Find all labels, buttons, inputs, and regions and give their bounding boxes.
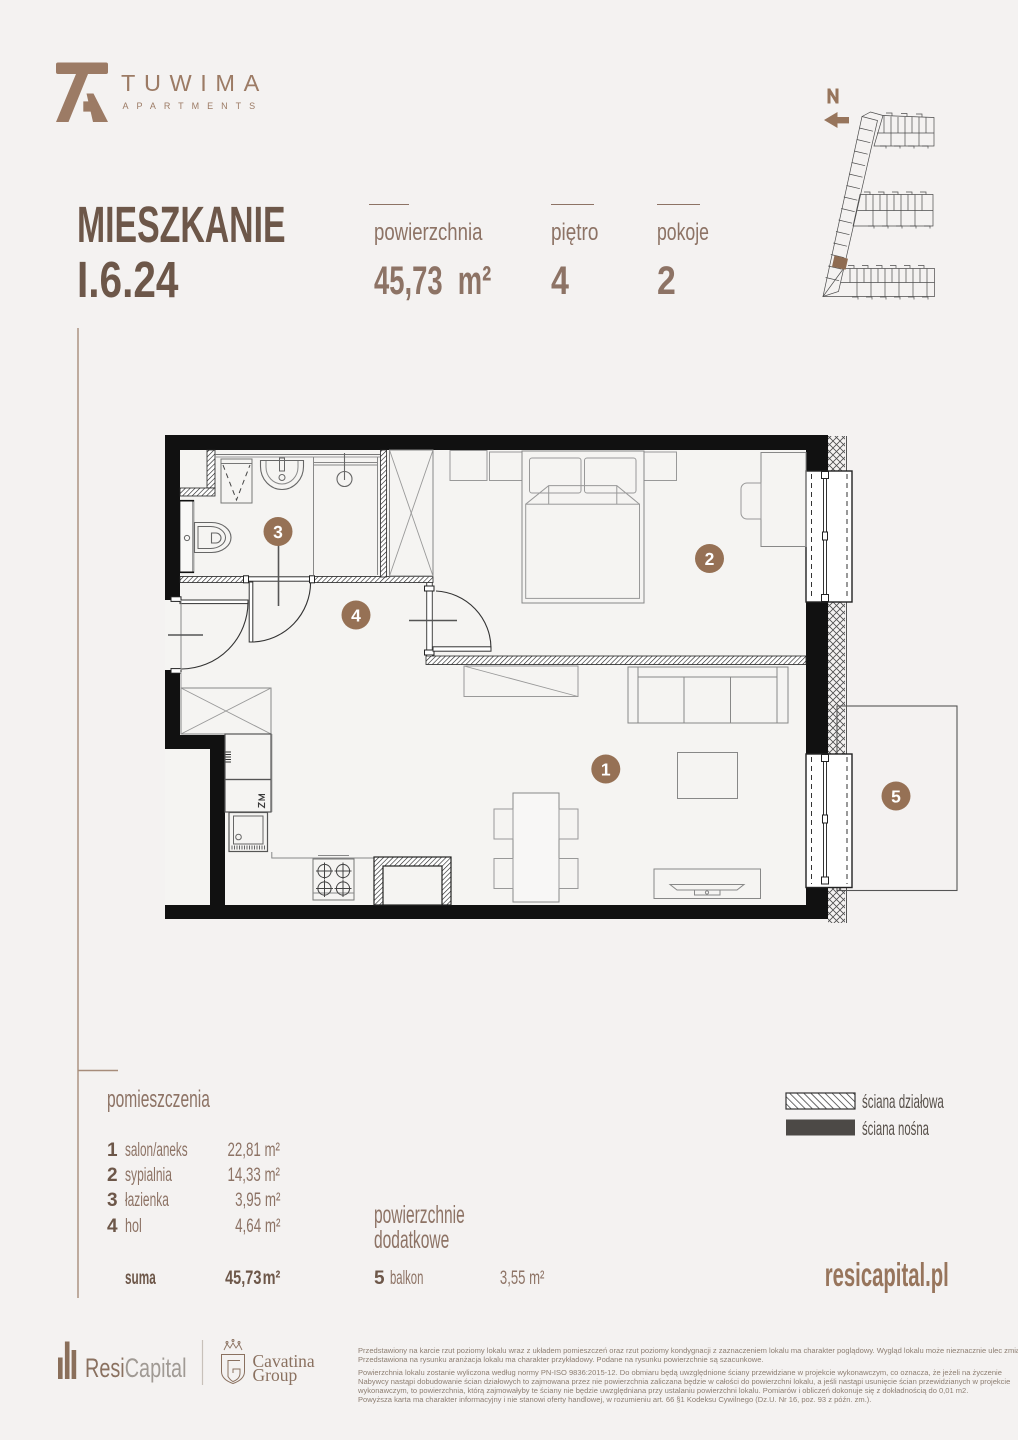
svg-text:5: 5 xyxy=(891,787,901,807)
svg-text:4: 4 xyxy=(351,606,361,626)
svg-text:2: 2 xyxy=(705,549,715,569)
svg-text:1: 1 xyxy=(601,760,611,780)
svg-text:3: 3 xyxy=(273,522,283,542)
